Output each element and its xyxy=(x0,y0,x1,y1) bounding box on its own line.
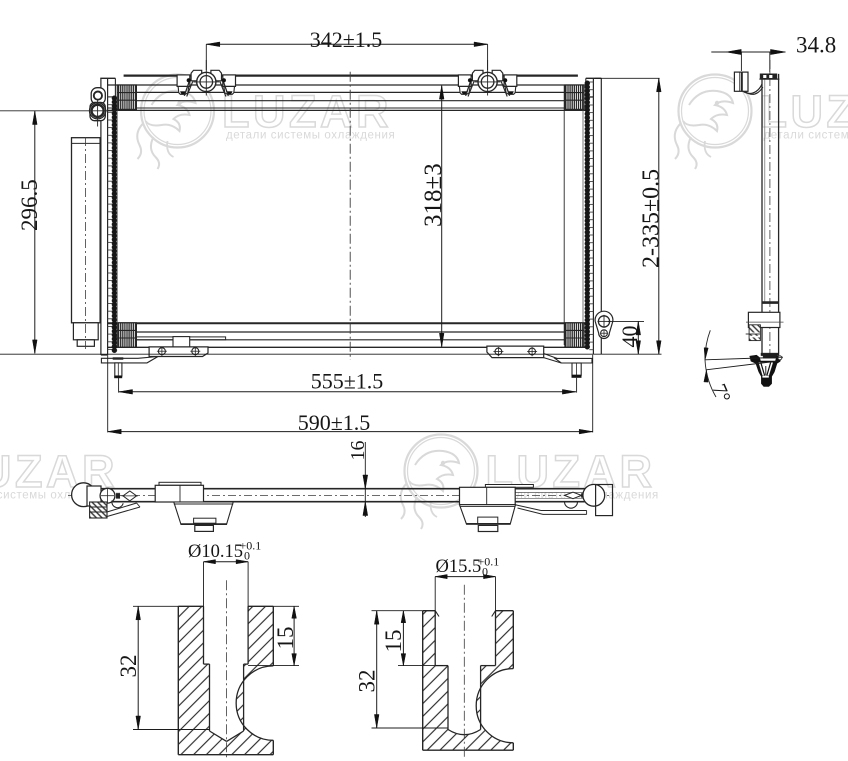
svg-text:34.8: 34.8 xyxy=(796,33,836,58)
svg-text:32: 32 xyxy=(354,670,379,693)
svg-text:16: 16 xyxy=(347,441,369,461)
svg-text:2-335±0.5: 2-335±0.5 xyxy=(638,169,664,268)
svg-text:Ø10.15: Ø10.15 xyxy=(188,542,243,562)
svg-text:15: 15 xyxy=(381,630,406,653)
svg-text:Ø15.5: Ø15.5 xyxy=(436,557,482,577)
svg-text:+0.1: +0.1 xyxy=(478,555,500,569)
svg-text:555±1.5: 555±1.5 xyxy=(311,369,384,394)
svg-text:590±1.5: 590±1.5 xyxy=(298,410,371,435)
svg-text:32: 32 xyxy=(116,655,141,678)
svg-text:318±3: 318±3 xyxy=(420,163,447,227)
svg-text:40: 40 xyxy=(617,326,642,348)
svg-text:296.5: 296.5 xyxy=(17,179,42,231)
svg-text:342±1.5: 342±1.5 xyxy=(310,27,383,52)
svg-text:15: 15 xyxy=(273,627,298,650)
svg-text:0: 0 xyxy=(244,548,250,562)
svg-text:детали системы охлаждения: детали системы охлаждения xyxy=(226,130,395,142)
svg-text:детали системы охлаждения: детали системы охлаждения xyxy=(764,130,848,142)
svg-text:+0.1: +0.1 xyxy=(240,539,262,553)
